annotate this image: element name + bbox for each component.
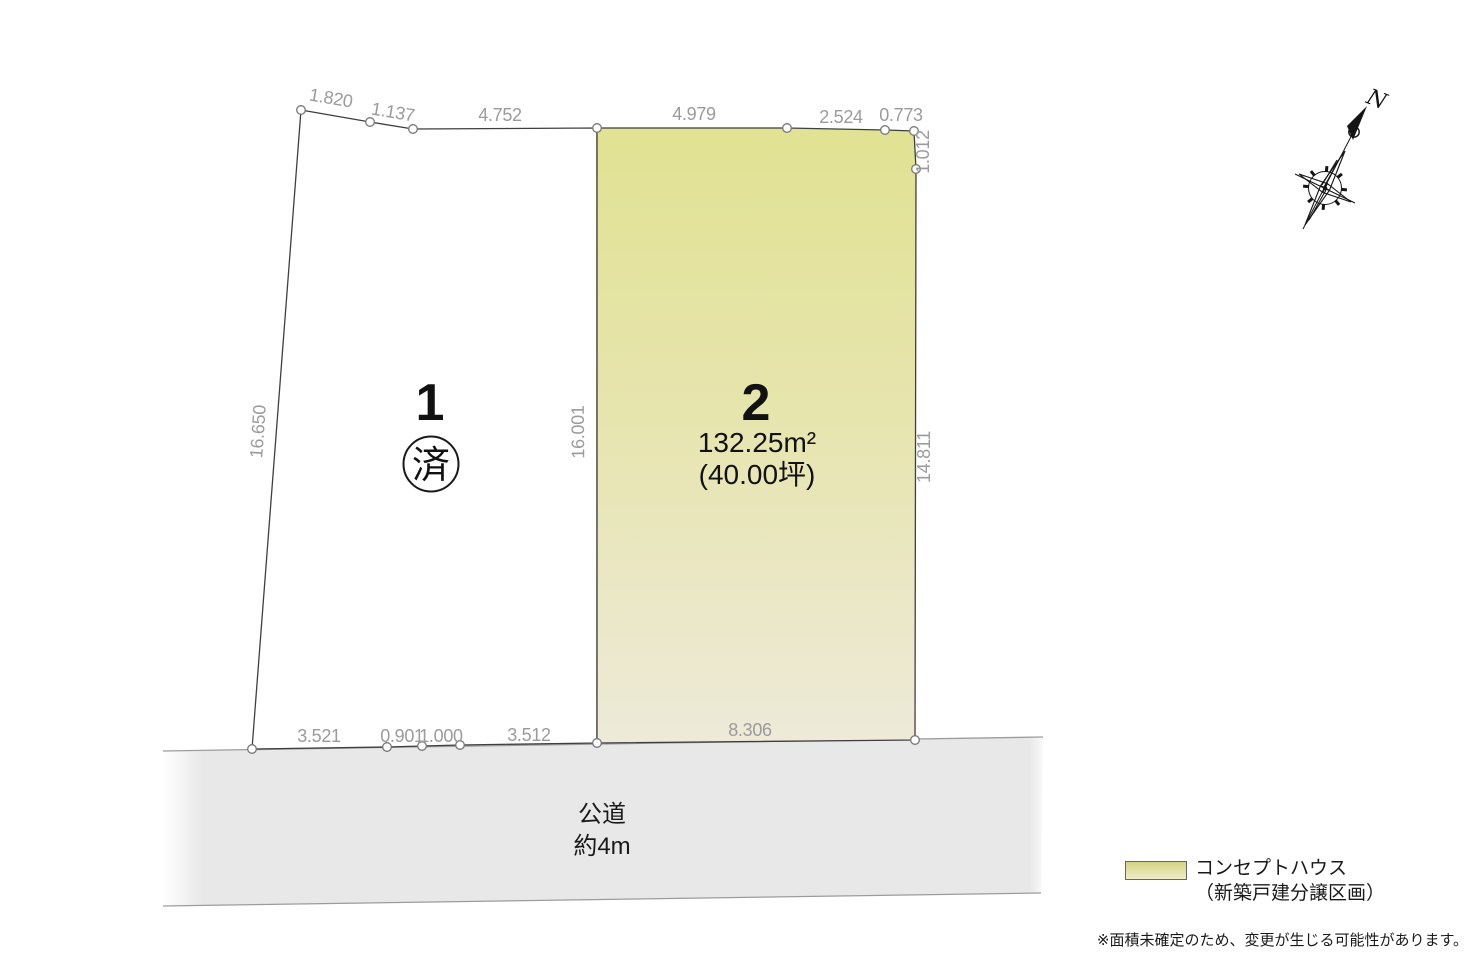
dim-label-bottom-4: 3.512: [507, 725, 551, 745]
legend-title: コンセプトハウス: [1195, 856, 1385, 881]
lot1-number: 1: [416, 374, 445, 432]
north-label: N: [1362, 84, 1391, 115]
dim-label-top-4: 4.979: [672, 104, 716, 124]
vertex-marker: [297, 106, 306, 115]
dim-label-top-6: 0.773: [879, 105, 923, 125]
dim-label-bottom-1: 3.521: [297, 726, 341, 746]
dim-label-top-3: 4.752: [478, 105, 522, 125]
vertex-marker: [783, 124, 792, 133]
dim-label-right-2: 14.811: [914, 431, 934, 483]
dim-label-bottom-3: 1.000: [419, 726, 463, 746]
land-plot-diagram-page: 1.820 1.137 4.752 4.979 2.524 0.773 16.6…: [0, 0, 1480, 968]
legend-subtitle: （新築戸建分譲区画）: [1195, 881, 1385, 906]
vertex-marker: [248, 745, 257, 754]
compass-center-dot: [1323, 186, 1327, 190]
dim-label-boundary: 16.001: [568, 405, 588, 459]
dim-label-bottom-5: 8.306: [728, 720, 772, 740]
dim-label-left: 16.650: [246, 404, 270, 459]
footnote-text: ※面積未確定のため、変更が生じる可能性があります。: [1097, 929, 1468, 950]
dim-label-top-1: 1.820: [308, 85, 355, 112]
dim-label-top-2: 1.137: [370, 99, 417, 126]
vertex-marker: [593, 124, 602, 133]
vertex-marker: [881, 126, 890, 135]
dim-label-bottom-2: 0.901: [380, 726, 424, 746]
compass-rose-icon: N: [1295, 84, 1391, 229]
lot2-area-m2: 132.25m²: [698, 427, 816, 458]
vertex-marker: [593, 739, 602, 748]
vertex-marker: [366, 118, 375, 127]
dim-label-right-1: 1.012: [913, 130, 933, 174]
road-name-label: 公道: [578, 801, 626, 828]
legend: コンセプトハウス （新築戸建分譲区画）: [1125, 856, 1385, 906]
lot1-status-label: 済: [412, 445, 450, 487]
lot2-number: 2: [742, 374, 771, 432]
road-width-label: 約4m: [573, 833, 630, 860]
lot2-area-tsubo: (40.00坪): [699, 459, 816, 490]
legend-swatch: [1125, 861, 1187, 880]
vertex-marker: [409, 125, 418, 134]
dim-label-top-5: 2.524: [819, 107, 863, 127]
vertex-marker: [911, 736, 920, 745]
plot-diagram-svg: 1.820 1.137 4.752 4.979 2.524 0.773 16.6…: [0, 0, 1480, 968]
